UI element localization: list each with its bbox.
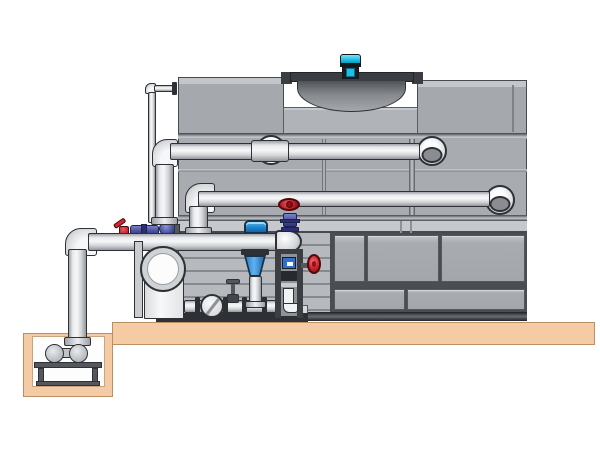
pump-volute-face [147, 253, 179, 285]
riser1-end-elbow [417, 136, 447, 166]
concrete-slab [112, 322, 595, 345]
riser2-horizontal [198, 191, 490, 207]
inline-pump-motor-cap [244, 220, 268, 234]
riser1-drop [155, 164, 174, 219]
tower-brick [367, 235, 439, 282]
top-valve-lower-flange [281, 227, 299, 232]
sump-pump-stand-leg [38, 368, 44, 382]
sump-pump-drum [69, 344, 88, 363]
sump-pump-stand-leg [92, 368, 98, 382]
inline-pump-base-flange [245, 301, 266, 308]
tower-light-band [178, 221, 527, 233]
riser1-elbow-opening [422, 147, 443, 163]
tower-light-band-seam2 [410, 221, 412, 233]
sump-pump-drum [45, 344, 64, 363]
tower-top-right-block [417, 80, 527, 134]
tower-brick [334, 289, 405, 310]
top-valve-hub [286, 201, 293, 208]
makeup-line-stub [154, 85, 174, 92]
makeup-line-flange [172, 82, 177, 95]
gauge-marker [287, 262, 293, 266]
tower-top-rail [178, 133, 527, 139]
tower-rowA-rowB-divider [178, 169, 527, 172]
cooling-tower-installation-diagram [0, 0, 600, 450]
check-valve-disc [205, 297, 221, 316]
gate-valve-bonnet [227, 294, 239, 303]
riser1-union-sleeve [251, 140, 289, 162]
pit-line-vertical [68, 249, 87, 346]
frame-dark-panel [281, 271, 297, 281]
fan-motor-window [346, 68, 355, 77]
pressure-gauge-blue [282, 257, 296, 269]
side-valve-hub [312, 261, 316, 267]
check-valve [200, 294, 224, 318]
frame-elbow-foot [283, 303, 298, 313]
inline-pump-top-flange [241, 249, 269, 255]
sump-pump-stand-base [36, 381, 100, 386]
riser1-horizontal [170, 143, 420, 160]
tower-light-band-seam1 [400, 221, 402, 233]
tower-brick [441, 235, 525, 282]
frame-light-strip [281, 283, 297, 287]
top-valve-wing-flange [280, 219, 300, 223]
tower-top-right-seam [512, 85, 514, 132]
riser2-elbow-opening [490, 196, 511, 212]
inline-pump-column [249, 276, 262, 304]
riser1-drop-flange [151, 217, 178, 225]
tower-top-left-block [178, 77, 284, 134]
tower-brick [334, 235, 365, 282]
tower-brick [407, 289, 525, 310]
